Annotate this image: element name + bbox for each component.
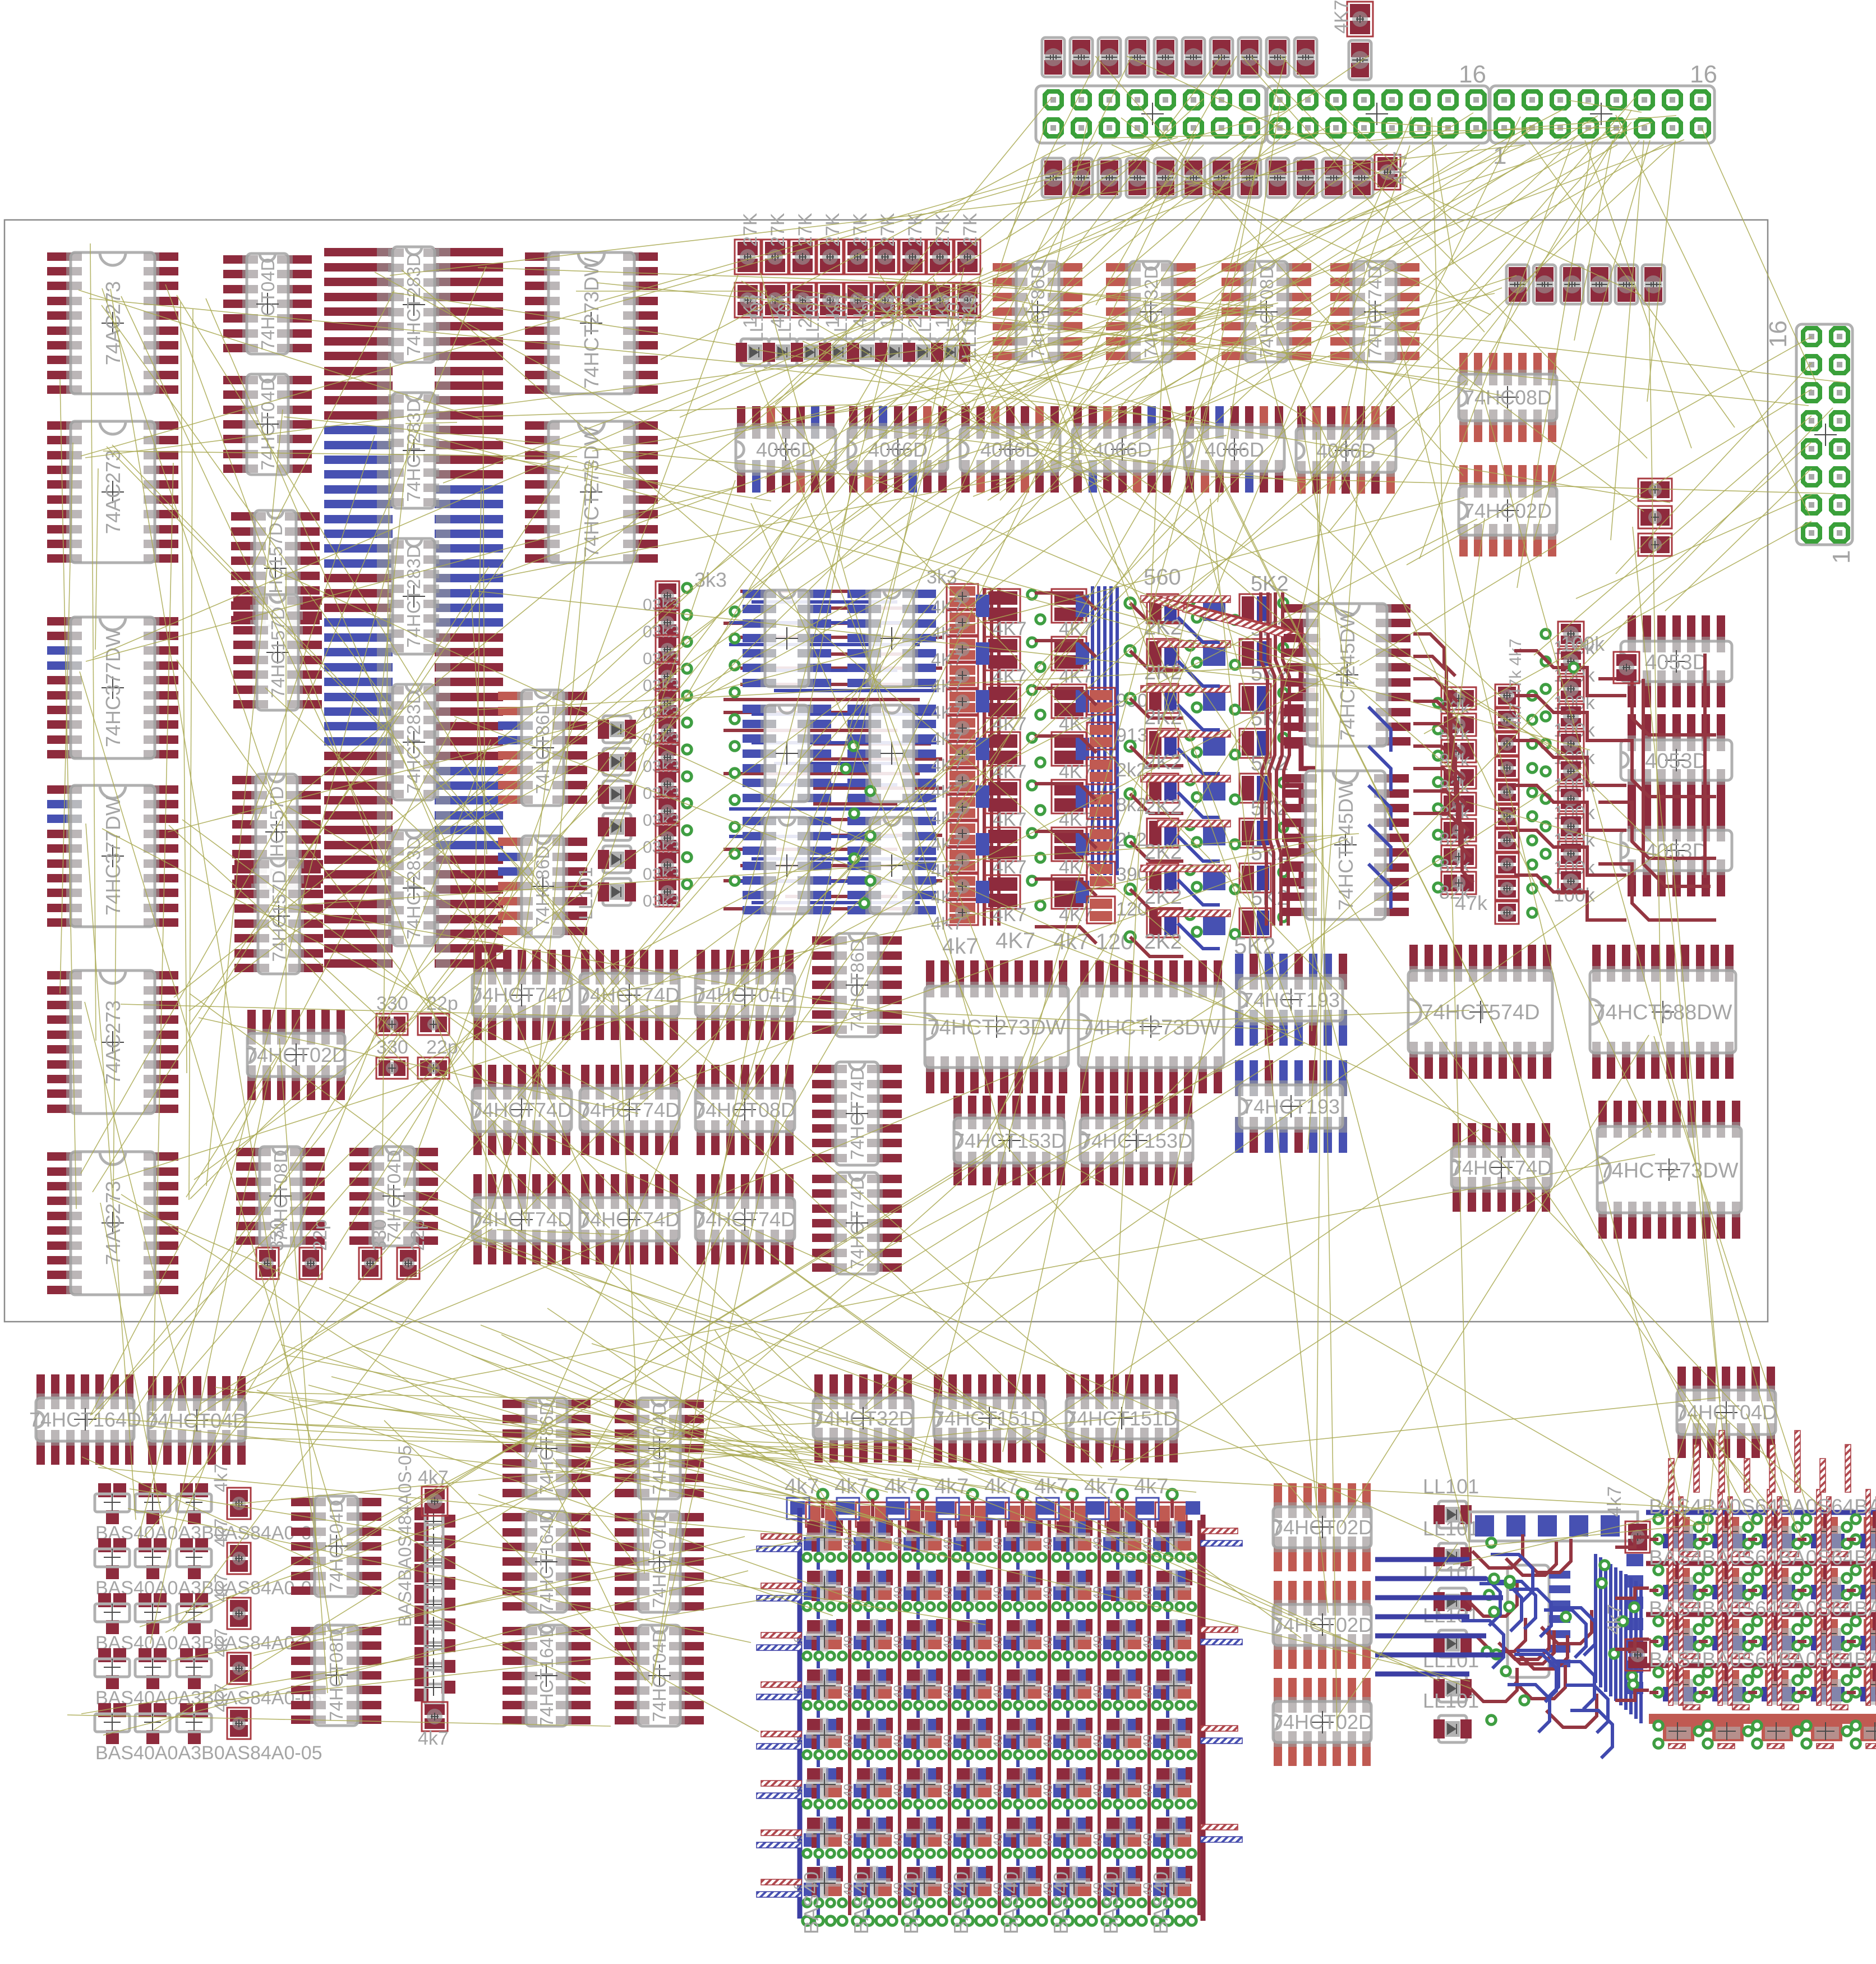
svg-text:74HCT04D: 74HCT04D xyxy=(257,257,278,350)
svg-text:74HCT245DW: 74HCT245DW xyxy=(1334,779,1357,910)
svg-text:47k: 47k xyxy=(1455,891,1488,914)
svg-text:74HCT74D: 74HCT74D xyxy=(471,983,572,1006)
svg-text:49: 49 xyxy=(991,1685,1005,1699)
svg-text:82k: 82k xyxy=(1439,829,1471,850)
svg-text:49: 49 xyxy=(941,1537,955,1551)
svg-text:74HCT688DW: 74HCT688DW xyxy=(1593,1001,1732,1024)
svg-text:22p: 22p xyxy=(407,1219,428,1251)
svg-text:2K2: 2K2 xyxy=(1144,840,1182,864)
svg-text:74HCT74D: 74HCT74D xyxy=(471,1098,572,1121)
svg-text:49: 49 xyxy=(1141,1636,1155,1649)
svg-text:74AC273: 74AC273 xyxy=(102,450,125,534)
svg-text:49: 49 xyxy=(941,1685,955,1699)
svg-text:LL101: LL101 xyxy=(831,292,851,342)
svg-text:74HC377DW: 74HC377DW xyxy=(102,797,125,916)
svg-text:BAS40A0A3B0AS84A0-05: BAS40A0A3B0AS84A0-05 xyxy=(95,1742,322,1764)
svg-text:27K: 27K xyxy=(822,213,843,247)
svg-text:4k7: 4k7 xyxy=(934,1475,969,1498)
svg-text:49: 49 xyxy=(991,1537,1005,1551)
svg-text:49: 49 xyxy=(841,1586,855,1600)
svg-text:74HCT74D: 74HCT74D xyxy=(579,1098,680,1121)
svg-text:49: 49 xyxy=(891,1685,905,1699)
svg-text:74HCT04D: 74HCT04D xyxy=(649,1629,670,1722)
svg-text:4k7: 4k7 xyxy=(418,1728,449,1749)
svg-text:4k7: 4k7 xyxy=(942,934,979,959)
svg-text:74HCT283D: 74HCT283D xyxy=(403,545,424,647)
svg-text:74HCT74D: 74HCT74D xyxy=(694,1208,795,1231)
svg-text:74AC273: 74AC273 xyxy=(102,1000,125,1084)
svg-text:27K: 27K xyxy=(960,213,981,247)
svg-text:74HCT74D: 74HCT74D xyxy=(1451,1156,1552,1179)
svg-text:74HCT74D: 74HCT74D xyxy=(847,1067,868,1160)
svg-text:LL101: LL101 xyxy=(803,292,823,342)
svg-text:4053D: 4053D xyxy=(1645,749,1708,773)
svg-text:100k: 100k xyxy=(1554,885,1596,906)
svg-text:LL101: LL101 xyxy=(575,867,597,920)
svg-text:LL101: LL101 xyxy=(957,303,980,359)
svg-text:03k3: 03k3 xyxy=(643,892,679,910)
svg-text:BAS40A0A3B0AS84A0-05: BAS40A0A3B0AS84A0-05 xyxy=(95,1577,322,1599)
svg-text:27K: 27K xyxy=(740,213,761,247)
svg-text:BAS40A0A3B0AS84A0-05: BAS40A0A3B0AS84A0-05 xyxy=(95,1632,322,1654)
svg-text:74HC08D: 74HC08D xyxy=(1463,386,1552,409)
svg-text:49: 49 xyxy=(891,1586,905,1600)
svg-text:49: 49 xyxy=(841,1636,855,1649)
svg-text:74HCT273DW: 74HCT273DW xyxy=(1600,1159,1738,1183)
svg-text:49: 49 xyxy=(991,1636,1005,1649)
svg-text:74HCT08D: 74HCT08D xyxy=(326,1629,347,1721)
svg-text:4k7: 4k7 xyxy=(1084,1475,1118,1498)
svg-text:74HCT86D: 74HCT86D xyxy=(532,701,553,794)
svg-text:4K7: 4K7 xyxy=(995,928,1035,953)
svg-text:49: 49 xyxy=(1041,1636,1055,1649)
svg-text:16: 16 xyxy=(1764,320,1792,348)
svg-text:4066D: 4066D xyxy=(1205,438,1264,461)
svg-text:74HCT193: 74HCT193 xyxy=(1242,1095,1340,1118)
svg-text:74HCT164D: 74HCT164D xyxy=(536,1624,557,1727)
svg-text:4K7: 4K7 xyxy=(1331,0,1352,34)
svg-text:49: 49 xyxy=(1091,1537,1105,1551)
svg-text:1: 1 xyxy=(1828,550,1855,564)
svg-text:4053D: 4053D xyxy=(1645,651,1708,674)
svg-text:4066D: 4066D xyxy=(1316,439,1376,462)
svg-text:49: 49 xyxy=(1041,1586,1055,1600)
svg-text:49: 49 xyxy=(941,1636,955,1649)
svg-text:27K: 27K xyxy=(795,213,816,247)
svg-text:74HCT04D: 74HCT04D xyxy=(257,378,278,470)
svg-text:74HCT32D: 74HCT32D xyxy=(1141,265,1161,358)
svg-text:74HCT273DW: 74HCT273DW xyxy=(1081,1016,1220,1040)
svg-text:4k7: 4k7 xyxy=(211,1683,231,1712)
svg-text:74HCT74D: 74HCT74D xyxy=(579,983,680,1006)
svg-text:49: 49 xyxy=(1091,1636,1105,1649)
svg-text:74HCT04D: 74HCT04D xyxy=(326,1500,347,1592)
svg-text:16: 16 xyxy=(1459,61,1486,88)
svg-text:74HCT164D: 74HCT164D xyxy=(536,1510,557,1613)
svg-text:74HCT283D: 74HCT283D xyxy=(403,253,424,356)
svg-text:49: 49 xyxy=(991,1586,1005,1600)
svg-text:74HCT574D: 74HCT574D xyxy=(1421,1001,1539,1024)
svg-text:49: 49 xyxy=(1141,1586,1155,1600)
svg-text:LL101: LL101 xyxy=(915,292,935,342)
svg-text:27K: 27K xyxy=(905,213,926,247)
svg-text:49: 49 xyxy=(1041,1685,1055,1699)
svg-text:49: 49 xyxy=(941,1586,955,1600)
svg-text:49: 49 xyxy=(841,1685,855,1699)
svg-text:16: 16 xyxy=(1690,61,1717,88)
svg-text:22p: 22p xyxy=(310,1219,331,1251)
svg-text:27K: 27K xyxy=(932,213,953,247)
svg-text:330: 330 xyxy=(369,1219,390,1251)
svg-text:49: 49 xyxy=(891,1636,905,1649)
svg-text:74HC157D: 74HC157D xyxy=(268,606,288,698)
svg-text:49: 49 xyxy=(1041,1537,1055,1551)
svg-text:2K2: 2K2 xyxy=(1144,930,1182,954)
svg-text:4k7: 4k7 xyxy=(211,1463,231,1492)
svg-text:74HCT283D: 74HCT283D xyxy=(403,691,424,793)
svg-text:2K2: 2K2 xyxy=(1144,795,1182,819)
